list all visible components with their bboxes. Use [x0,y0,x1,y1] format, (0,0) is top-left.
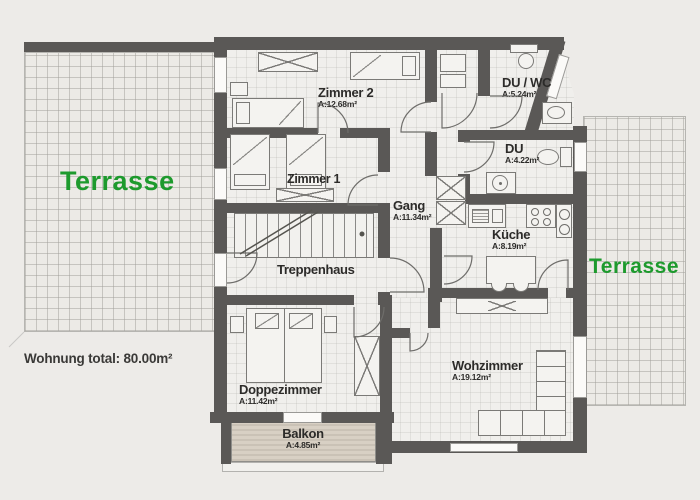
toilet-tank-du [560,147,572,167]
entry-shelf-2 [440,74,466,88]
room-label-zimmer1: Zimmer 1 [287,173,340,186]
terrace-door-wohnzimmer [573,336,587,398]
wall-doppezimmer-top [226,295,354,305]
terrace-perspective-line [9,332,24,347]
room-name: Zimmer 2 [318,86,373,100]
nightstand-zimmer2 [230,82,248,96]
wall-duwc-left [478,50,490,96]
wall-treppenhaus-top [226,203,390,213]
closet-gang-2 [436,201,466,225]
burner [559,209,570,220]
room-area: A:4.85m² [228,441,378,450]
double-bed [246,308,322,383]
kitchen-side-unit [556,204,572,238]
staircase [234,213,374,258]
total-area-label: Wohnung total: 80.00m² [24,351,172,366]
wall-zimmer2-zimmer1-right [340,128,390,138]
wall-treppenhaus-right [378,213,390,258]
terrace-right-label: Terrasse [589,255,679,279]
burner [543,208,551,216]
drainboard [472,209,489,223]
room-label-treppenhaus: Treppenhaus [277,263,355,277]
room-name: Balkon [228,427,378,441]
pillow [236,102,250,124]
shower-drain [499,182,502,185]
pillow [234,174,266,186]
bed-zimmer2-right [350,52,420,80]
sink-basin [547,106,565,119]
room-label-balkon: Balkon A:4.85m² [228,427,378,450]
blanket-fold [289,137,323,165]
blanket-fold [279,101,301,125]
room-name: Gang [393,199,431,213]
sideboard-decor [488,301,516,311]
toilet-bowl-du [537,149,559,165]
wall-du-left-top [458,130,470,142]
bed-divider [284,309,285,382]
room-area: A:8.19m² [492,242,530,251]
room-label-wohzimmer: Wohzimmer A:19.12m² [452,359,523,382]
bed-zimmer1-a [230,134,270,190]
wall-duwc-bottom [465,130,575,140]
room-name: Treppenhaus [277,263,355,277]
pillow [255,313,279,329]
window-zimmer1-left [214,168,227,200]
wall-kueche-wohnzimmer [428,288,548,298]
window-zimmer2-left [214,57,227,93]
sofa-horizontal [478,410,566,436]
window-wohnzimmer-bottom [450,443,518,452]
balcony-railing [222,462,384,472]
door-gap-terrace [214,253,227,287]
wall-hall-bottom [392,328,410,338]
room-name: Zimmer 1 [287,173,340,186]
burner [559,224,570,235]
wall-wohnzimmer-left [428,288,440,328]
window-balcony [283,412,322,423]
room-label-du: DU A:4.22m² [505,142,539,165]
nightstand-left [230,316,244,333]
nightstand-right [324,316,337,333]
wall-left [214,37,227,420]
room-name: Wohzimmer [452,359,523,373]
terrace-left-label: Terrasse [60,166,175,197]
wall-balcony-right [376,418,392,464]
room-name: Doppezimmer [239,383,322,397]
wall-zimmer1-right [378,138,390,172]
stove [526,204,556,228]
wardrobe-zimmer2 [258,52,318,72]
bed-zimmer2-bottom [232,98,304,128]
wall-du-bottom [465,194,574,204]
room-label-zimmer2: Zimmer 2 A:12.68m² [318,86,373,109]
toilet-bowl-duwc [518,53,534,69]
kitchen-table [486,256,536,284]
wall-kueche-wohnzimmer-stub [566,288,576,298]
wall-terrace-top [24,42,220,52]
shower-du [486,172,516,194]
window-du-right [574,142,587,172]
sink-basin [492,209,503,223]
pillow [289,313,313,329]
floorplan-page: Terrasse Terrasse Wohnung total: 80.00m²… [0,0,700,500]
closet-gang-1 [436,176,466,200]
burner [531,208,539,216]
room-area: A:4.22m² [505,156,539,165]
wall-zimmer2-right-stub [425,132,437,176]
room-name: DU [505,142,539,156]
room-label-gang: Gang A:11.34m² [393,199,431,222]
wall-zimmer2-right [425,50,437,102]
sofa-vertical [536,350,566,412]
wardrobe-zimmer1 [276,188,334,202]
room-name: DU / WC [502,76,551,90]
room-area: A:12.68m² [318,100,373,109]
room-area: A:11.34m² [393,213,431,222]
room-area: A:5.24m² [502,90,551,99]
burner [543,218,551,226]
wall-doppezimmer-right [380,295,392,422]
sideboard-wohnzimmer [456,298,548,314]
room-area: A:19.12m² [452,373,523,382]
room-label-kueche: Küche A:8.19m² [492,228,530,251]
entry-shelf-1 [440,54,466,72]
room-area: A:11.42m² [239,397,322,406]
room-label-duwc: DU / WC A:5.24m² [502,76,551,99]
kitchen-sink-unit [468,204,506,228]
sink-duwc [542,102,572,124]
pillow [402,56,416,76]
blanket-fold [233,137,267,165]
blanket-fold [353,55,381,77]
wardrobe-doppezimmer [354,336,380,396]
room-name: Küche [492,228,530,242]
burner [531,218,539,226]
toilet-tank-duwc [510,44,538,53]
room-label-doppezimmer: Doppezimmer A:11.42m² [239,383,322,406]
